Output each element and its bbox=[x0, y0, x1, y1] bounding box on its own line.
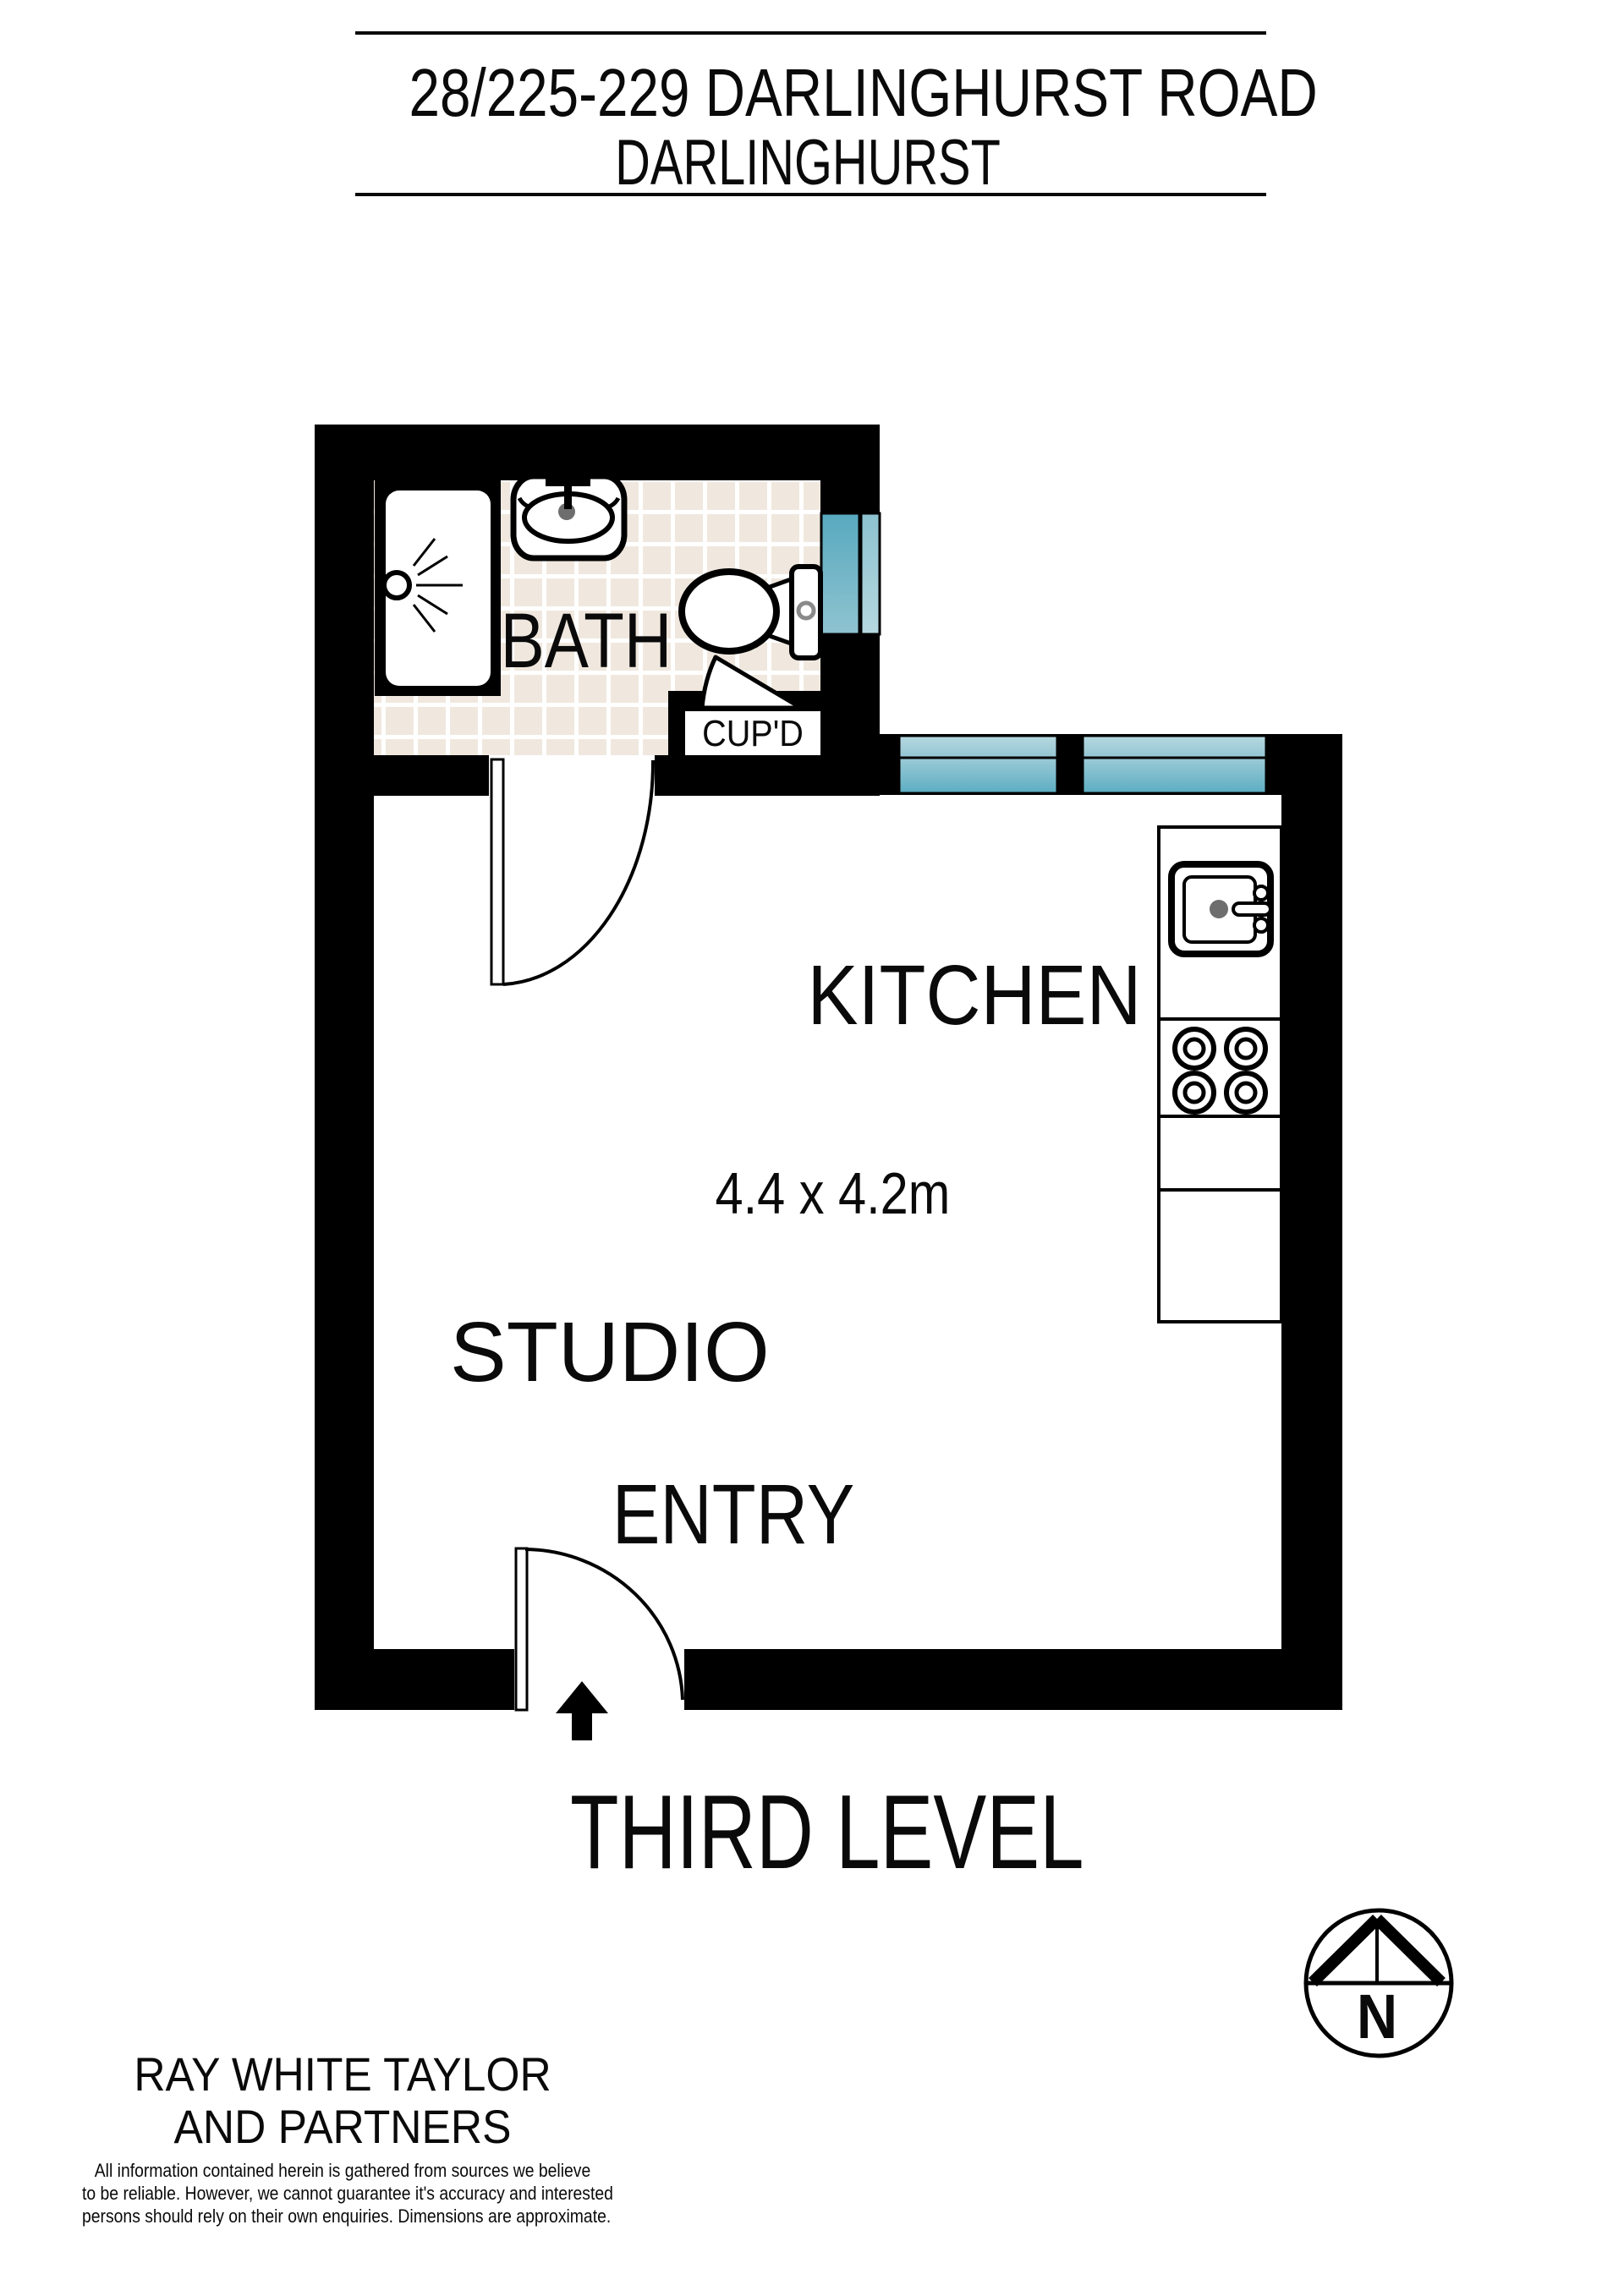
wall-bottom-right bbox=[684, 1649, 1342, 1710]
wall-bath-bottom-left bbox=[315, 755, 489, 796]
room-label-kitchen: KITCHEN bbox=[807, 953, 1142, 1038]
disclaimer-line1: All information contained herein is gath… bbox=[82, 2162, 603, 2180]
wall-bath-bottom-right bbox=[655, 755, 880, 796]
compass-north-label: N bbox=[1351, 1986, 1402, 2048]
basin-icon bbox=[513, 470, 624, 558]
disclaimer-line3: persons should rely on their own enquiri… bbox=[82, 2207, 603, 2226]
cistern-button-icon bbox=[798, 603, 814, 618]
bathroom-window bbox=[821, 513, 880, 634]
kitchen-counter bbox=[1159, 827, 1281, 1322]
entry-door-leaf bbox=[516, 1548, 527, 1710]
kitchen-window-2 bbox=[1083, 736, 1266, 793]
room-label-entry: ENTRY bbox=[607, 1472, 859, 1557]
bathroom-door-leaf bbox=[491, 759, 503, 984]
agency-name-line2: AND PARTNERS bbox=[109, 2103, 576, 2151]
wall-bottom-left bbox=[315, 1649, 514, 1710]
basin-tap-icon bbox=[564, 470, 572, 509]
studio-dimensions-label: 4.4 x 4.2m bbox=[716, 1164, 931, 1223]
kitchen-sink-icon bbox=[1171, 864, 1270, 954]
floor-plan-drawing bbox=[0, 0, 1624, 2296]
floorplan-sheet: 28/225-229 DARLINGHURST ROAD DARLINGHURS… bbox=[0, 0, 1624, 2296]
agency-name-line1: RAY WHITE TAYLOR bbox=[109, 2051, 576, 2098]
level-label: THIRD LEVEL bbox=[570, 1780, 1020, 1885]
bathroom-door-arc bbox=[503, 760, 653, 984]
room-label-studio: STUDIO bbox=[450, 1310, 746, 1395]
wall-bath-top bbox=[315, 425, 880, 480]
entry-door-arc bbox=[525, 1549, 683, 1700]
room-label-bath: BATH bbox=[486, 602, 687, 680]
wall-right bbox=[1281, 734, 1342, 1710]
shower-head-icon bbox=[384, 573, 409, 598]
kitchen-window-1 bbox=[899, 736, 1057, 793]
disclaimer-line2: to be reliable. However, we cannot guara… bbox=[82, 2184, 603, 2203]
wall-left bbox=[315, 425, 374, 1710]
entry-arrow-icon bbox=[556, 1681, 608, 1740]
wall-cupboard-jamb bbox=[668, 691, 685, 755]
room-label-cupboard: CUP'D bbox=[690, 715, 815, 753]
toilet-icon bbox=[682, 567, 820, 658]
shower-tub-icon bbox=[375, 480, 501, 696]
